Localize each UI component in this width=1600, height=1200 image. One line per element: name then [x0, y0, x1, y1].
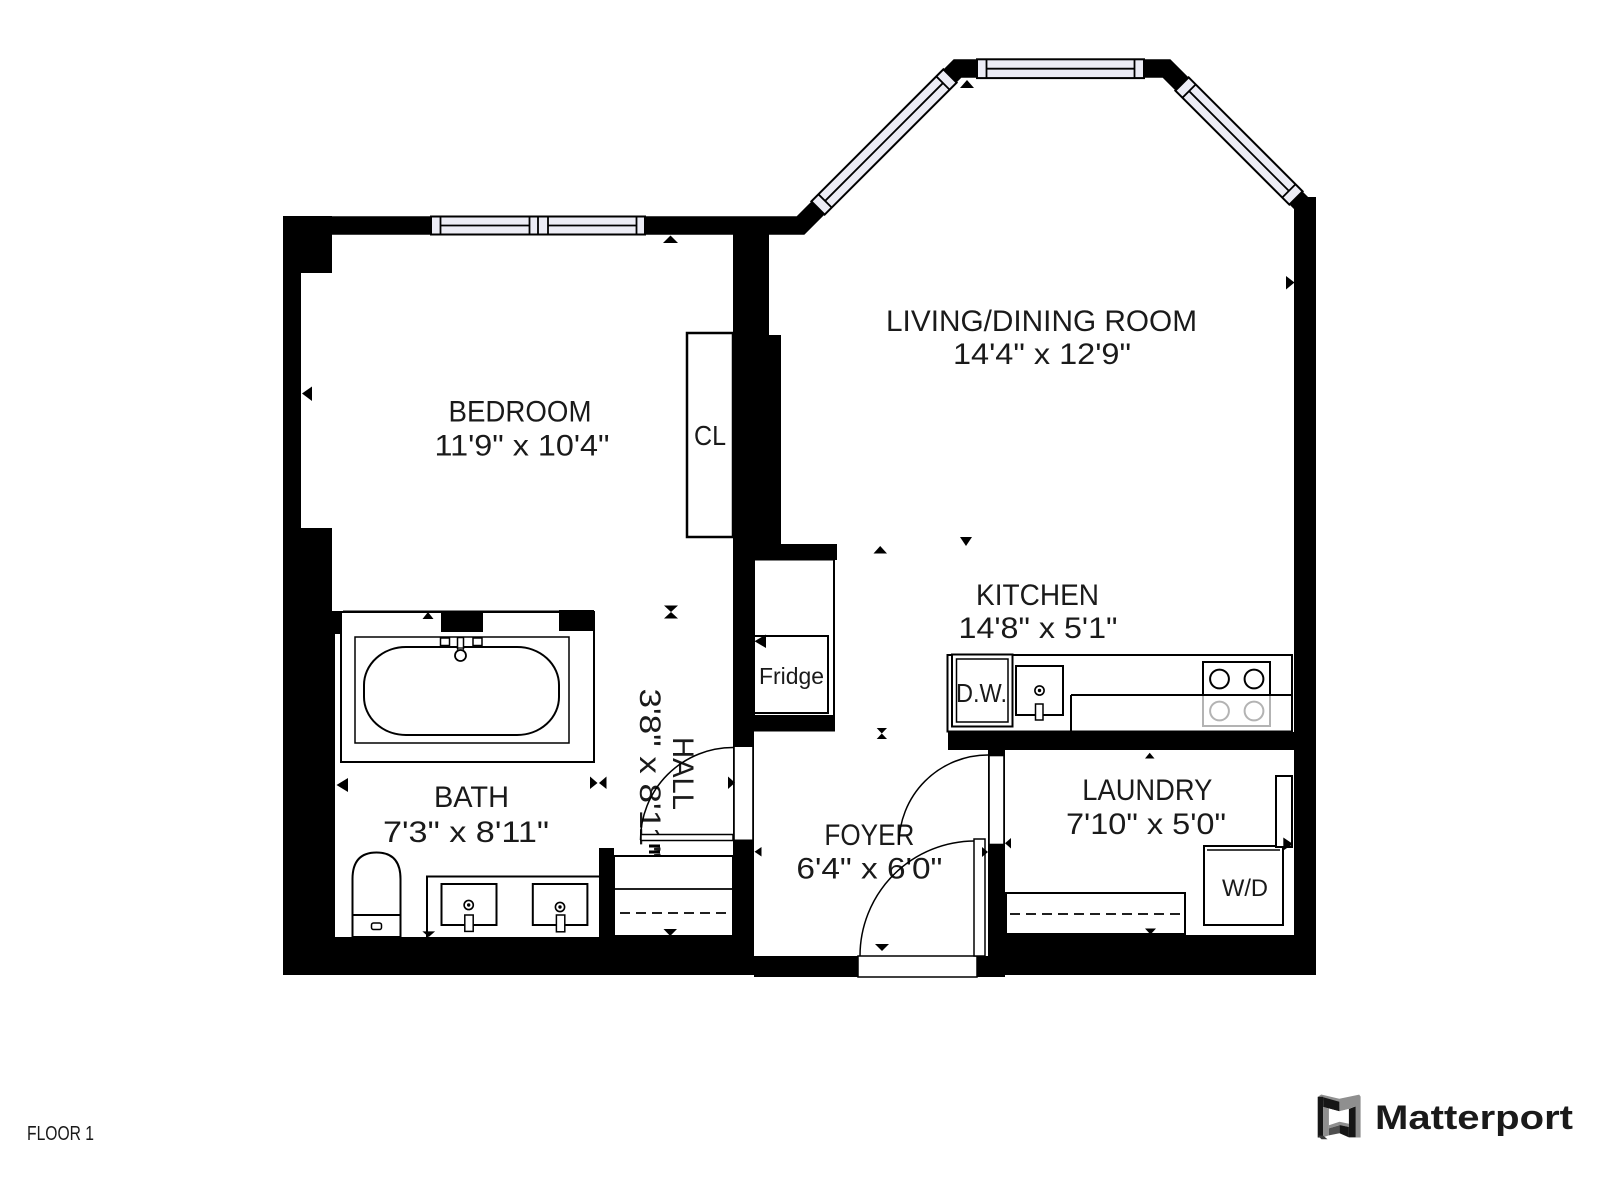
svg-text:BATH: BATH: [434, 781, 509, 814]
svg-text:7'3" x 8'11": 7'3" x 8'11": [383, 816, 549, 849]
svg-text:3'8" x 8'11": 3'8" x 8'11": [633, 689, 666, 859]
svg-text:W/D: W/D: [1222, 875, 1268, 902]
svg-text:11'9" x 10'4": 11'9" x 10'4": [435, 430, 610, 463]
svg-text:KITCHEN: KITCHEN: [976, 579, 1099, 612]
svg-text:CL: CL: [694, 420, 726, 451]
svg-text:14'8" x 5'1": 14'8" x 5'1": [959, 612, 1118, 645]
svg-text:7'10" x 5'0": 7'10" x 5'0": [1066, 808, 1226, 841]
svg-text:HALL: HALL: [666, 737, 699, 810]
svg-text:6'4" x 6'0": 6'4" x 6'0": [796, 853, 942, 886]
svg-text:FLOOR 1: FLOOR 1: [27, 1123, 94, 1145]
svg-text:BEDROOM: BEDROOM: [449, 396, 592, 429]
svg-text:Matterport: Matterport: [1375, 1099, 1573, 1137]
svg-text:LAUNDRY: LAUNDRY: [1082, 774, 1212, 807]
svg-text:Fridge: Fridge: [759, 663, 824, 689]
svg-text:LIVING/DINING ROOM: LIVING/DINING ROOM: [886, 305, 1197, 338]
svg-text:14'4" x 12'9": 14'4" x 12'9": [953, 338, 1131, 371]
svg-text:D.W.: D.W.: [956, 678, 1007, 708]
